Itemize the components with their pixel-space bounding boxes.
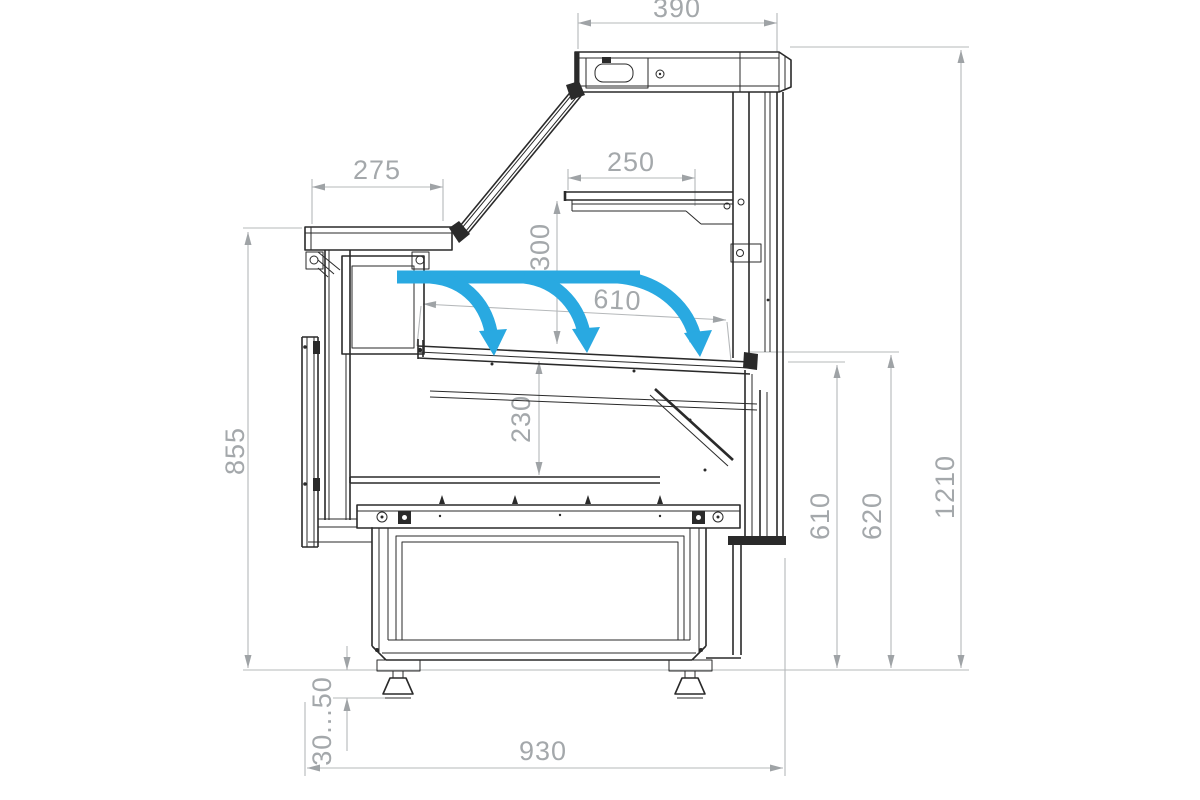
arrowhead-down-icon	[572, 327, 600, 353]
airflow-arrow-2	[524, 277, 600, 353]
right-lower-section	[650, 370, 786, 658]
airflow-arrow-1	[430, 277, 507, 356]
dim-foot-adjust: 30...50	[307, 646, 351, 766]
hinge-icon	[313, 341, 320, 354]
screw-icon	[416, 256, 424, 264]
technical-drawing-canvas: 390 275 250 300 610	[0, 0, 1200, 800]
clip-icon	[439, 495, 445, 504]
dim-canopy-width-label: 390	[653, 0, 701, 23]
display-case-section-drawing: 390 275 250 300 610	[0, 0, 1200, 800]
bottom-trim	[728, 536, 786, 545]
dim-rear-height-inner-label: 610	[805, 492, 835, 540]
screw-icon	[738, 199, 744, 205]
dim-rear-height-inner: 610	[805, 365, 841, 668]
dim-canopy-width: 390	[578, 0, 777, 27]
well-bottom	[350, 477, 663, 504]
dim-total-height-label: 1210	[930, 455, 960, 519]
glass-top-hinge	[566, 81, 585, 100]
dim-well-depth: 230	[506, 361, 543, 475]
hinge-icon	[313, 478, 320, 491]
shelf-bracket-plate	[731, 244, 761, 262]
screw-icon	[737, 250, 744, 257]
clip-icon	[512, 495, 518, 504]
front-glass	[449, 81, 585, 243]
dim-counter-depth-label: 275	[353, 155, 401, 185]
dim-counter-height: 855	[220, 232, 252, 668]
front-door-panel	[302, 337, 320, 547]
dim-shelf-depth-label: 250	[607, 147, 655, 177]
arrowhead-down-icon	[479, 329, 507, 356]
upper-shelf	[565, 191, 733, 224]
dim-shelf-depth: 250	[568, 147, 695, 182]
arrowhead-down-icon	[684, 330, 712, 357]
dim-well-depth-label: 230	[506, 395, 536, 443]
dim-rear-height-outer: 620	[857, 355, 895, 668]
dim-shelf-height-label: 300	[525, 223, 555, 271]
base-frame	[357, 505, 740, 660]
dim-base-width: 930	[307, 736, 783, 772]
screw-icon	[310, 256, 318, 264]
foot-right	[669, 660, 712, 698]
rear-column	[731, 92, 783, 538]
canopy	[575, 52, 791, 92]
dim-deck-width-label: 610	[593, 284, 643, 316]
dim-rear-height-outer-label: 620	[857, 492, 887, 540]
dim-base-width-label: 930	[519, 736, 567, 766]
clip-icon	[585, 495, 591, 504]
dim-counter-depth: 275	[312, 155, 443, 191]
dim-total-height: 1210	[930, 50, 965, 668]
clip-icon	[657, 495, 663, 504]
dim-counter-height-label: 855	[220, 427, 250, 475]
ext-275	[312, 179, 443, 224]
foot-left	[377, 660, 420, 698]
lamp-icon	[595, 64, 633, 82]
dim-foot-adjust-label: 30...50	[307, 676, 337, 766]
